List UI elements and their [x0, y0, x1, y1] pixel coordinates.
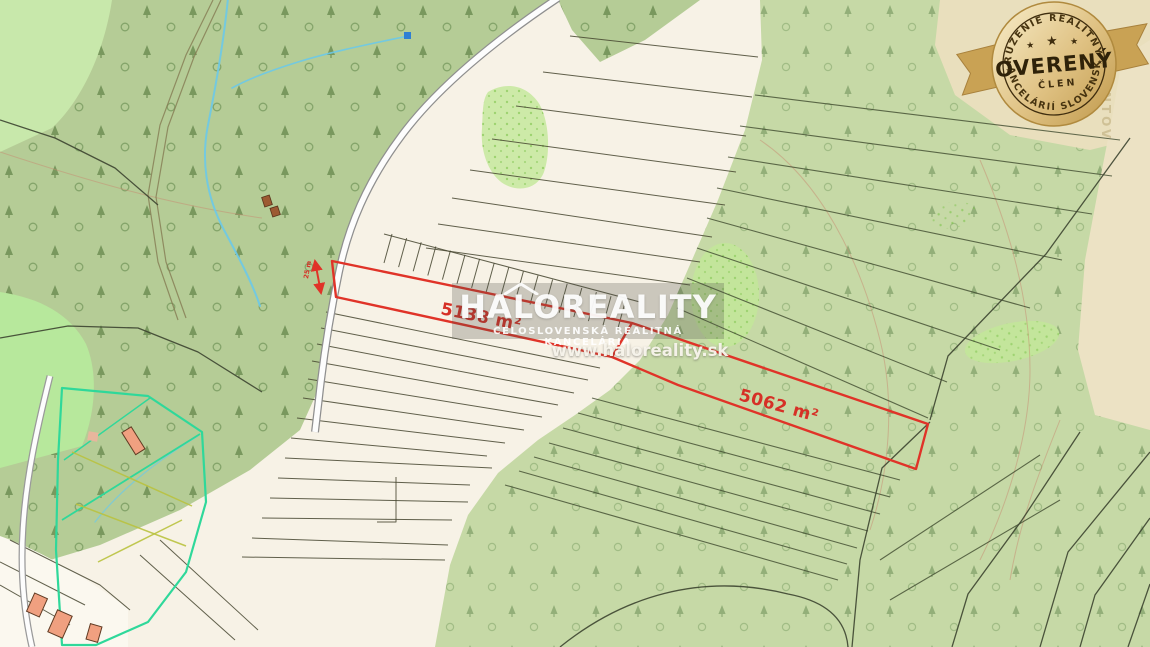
star-icon: ★ [1046, 34, 1059, 50]
watermark-brand: HALOREALITY [452, 291, 724, 323]
star-icon: ★ [1070, 37, 1079, 48]
listing-map-image: 25 m 5138 m² 5062 m² LENTOV HALOREALITY … [0, 0, 1150, 647]
certification-badge: ZDRUŽENIE REALITNÝCH KANCELÁRIÍ SLOVENSK… [944, 0, 1150, 150]
watermark-url: www.haloreality.sk [537, 341, 743, 360]
star-icon: ★ [1005, 67, 1011, 74]
star-icon: ★ [1097, 59, 1103, 66]
water-point [404, 32, 411, 39]
star-icon: ★ [1026, 41, 1035, 52]
